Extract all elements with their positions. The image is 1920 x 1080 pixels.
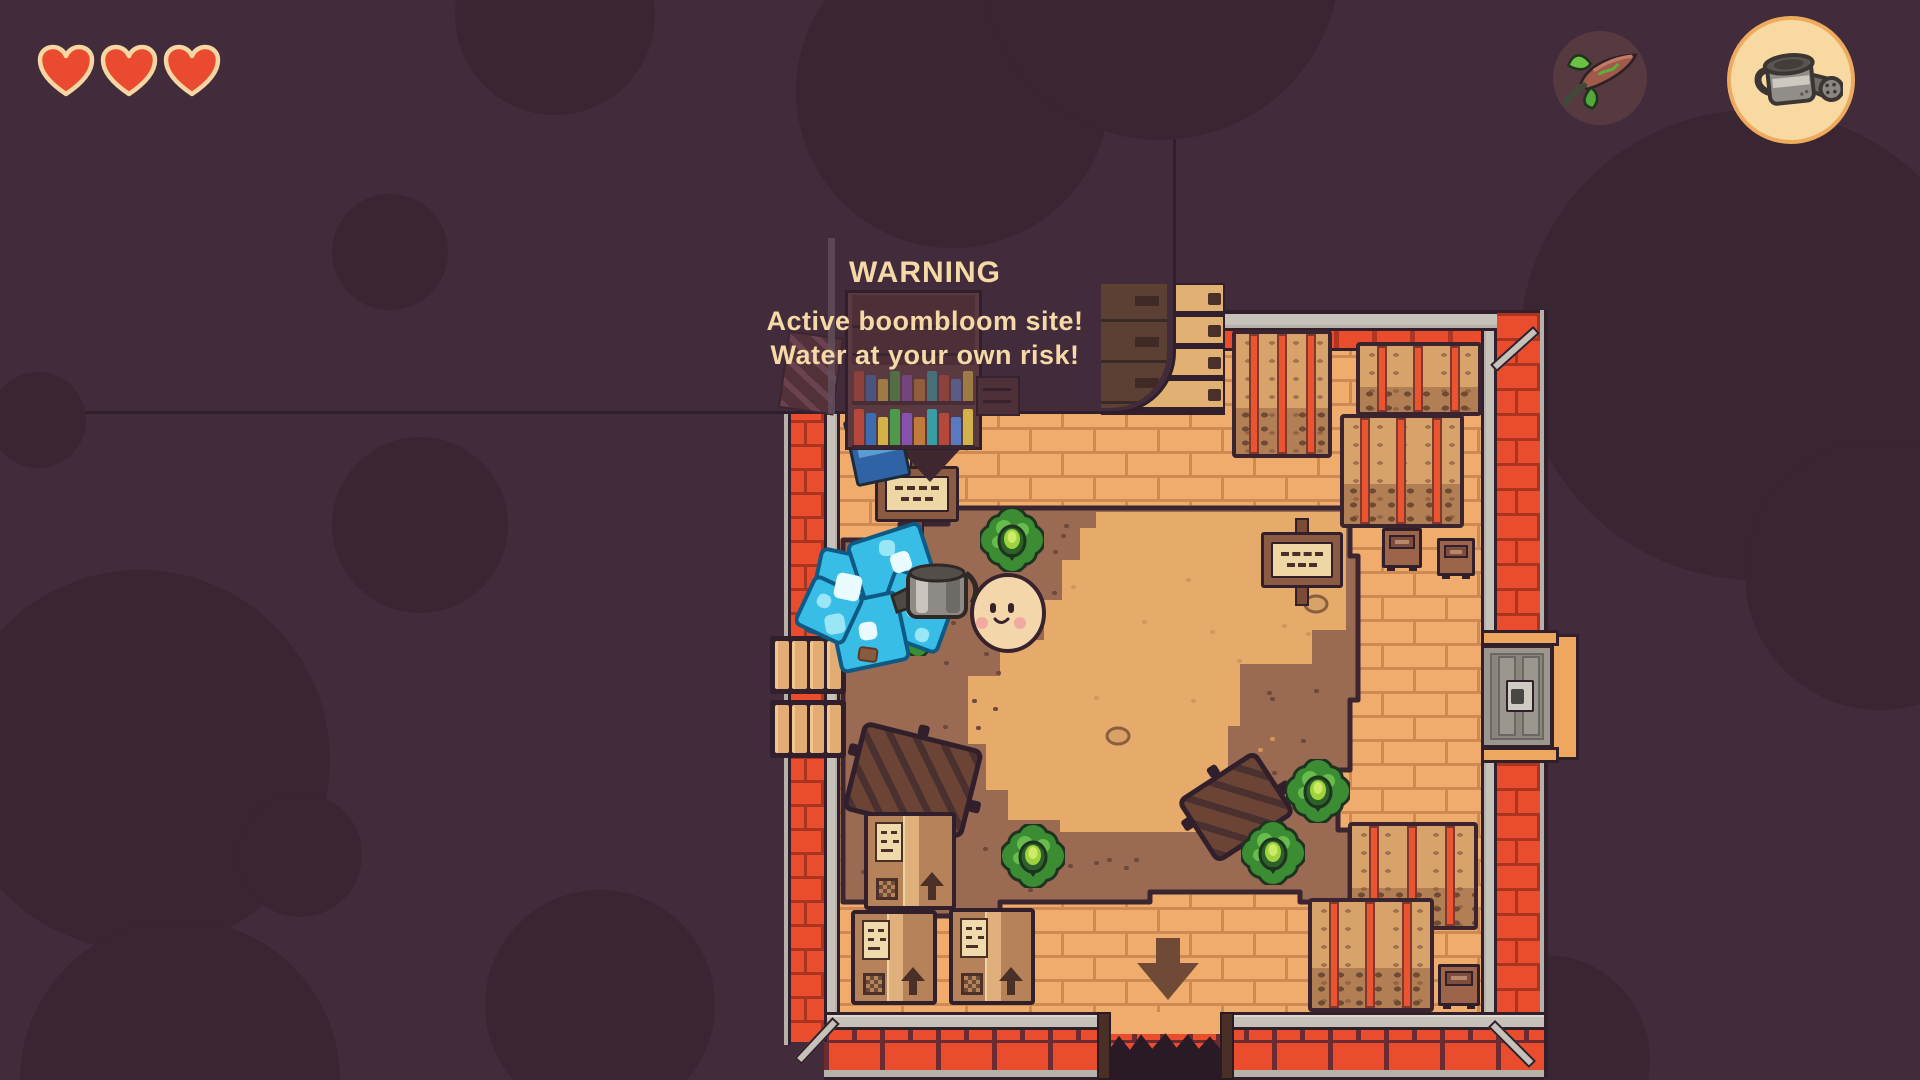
shadow-slot <box>1135 378 1159 388</box>
hud-item-boombloom-seed[interactable] <box>1553 31 1647 125</box>
hud-item-watering-can[interactable] <box>1727 16 1855 144</box>
warning-line-1: Active boombloom site! <box>695 304 1155 338</box>
shadowed-furniture <box>0 0 1920 1080</box>
health-hearts <box>36 44 296 106</box>
game-screen: WARNING Active boombloom site! Water at … <box>0 0 1920 1080</box>
heart-icon <box>36 44 96 100</box>
dresser-line <box>983 388 1011 391</box>
warning-line-2: Water at your own risk! <box>695 338 1155 372</box>
heart-icon <box>162 44 222 100</box>
warning-dialog: WARNING Active boombloom site! Water at … <box>695 258 1155 372</box>
watering-can-icon <box>1743 44 1843 128</box>
dresser-line <box>983 400 1011 403</box>
warning-title: WARNING <box>695 258 1155 288</box>
heart-icon <box>99 44 159 100</box>
root-seed-icon <box>1557 37 1643 119</box>
book-row <box>852 371 975 405</box>
shadow-dresser <box>976 376 1020 416</box>
book-row <box>852 409 975 449</box>
hud <box>0 0 1920 160</box>
inventory-items <box>1540 10 1880 150</box>
